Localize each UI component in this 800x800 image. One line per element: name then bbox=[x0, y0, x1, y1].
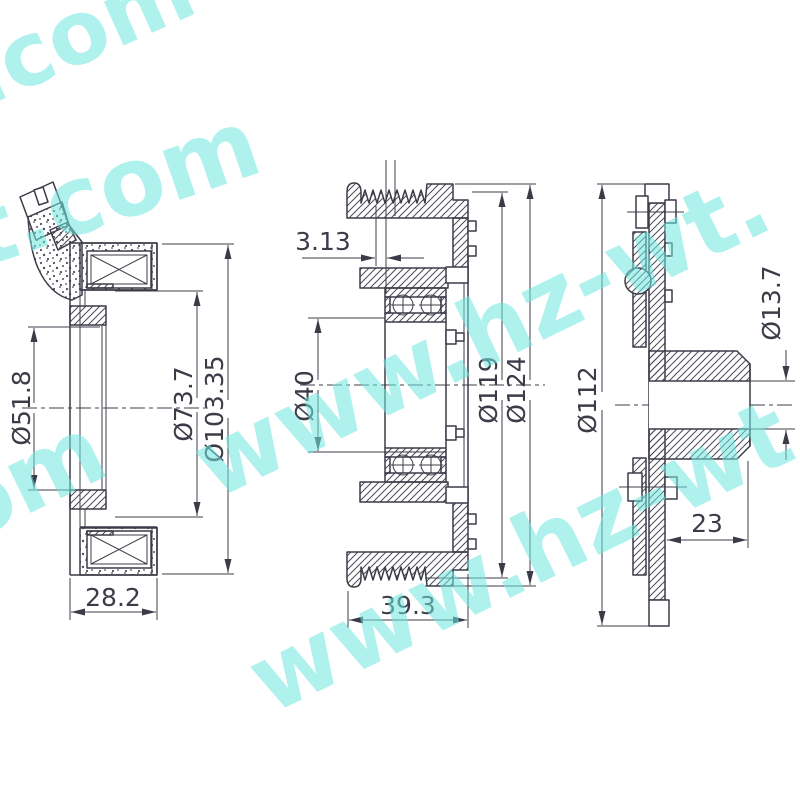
coil-box-bottom bbox=[87, 531, 151, 568]
dimension-coil-diameter: Ø73.7 bbox=[115, 291, 203, 517]
pulley-rim-top bbox=[347, 183, 468, 218]
coil-box-top bbox=[87, 251, 151, 288]
coil-housing-body bbox=[70, 243, 157, 575]
drawing-canvas: Ø51.8 Ø73.7 Ø103.35 28.2 bbox=[0, 0, 800, 800]
dim-label-groove-pitch: 3.13 bbox=[295, 227, 351, 256]
rim-tab bbox=[468, 246, 476, 256]
pulley-web-bottom bbox=[360, 482, 448, 502]
rivet-pin-bottom bbox=[446, 426, 464, 440]
watermark-fragment: -wt.com bbox=[0, 88, 273, 332]
dim-label-width-left: 28.2 bbox=[85, 583, 141, 612]
dim-label-disc-diameter: Ø112 bbox=[573, 366, 602, 433]
web-step-bottom bbox=[446, 487, 468, 503]
technical-drawing: Ø51.8 Ø73.7 Ø103.35 28.2 bbox=[0, 0, 800, 800]
bearing-bottom bbox=[385, 448, 446, 482]
rim-tab bbox=[468, 221, 476, 231]
rim-wall-top bbox=[453, 218, 468, 268]
dimension-width-left: 28.2 bbox=[70, 578, 157, 620]
pulley-web-top bbox=[360, 268, 448, 288]
dim-label-hole-diameter: Ø13.7 bbox=[757, 265, 786, 340]
wall-step-top bbox=[70, 306, 106, 325]
plate-bottom-foot bbox=[649, 600, 669, 626]
